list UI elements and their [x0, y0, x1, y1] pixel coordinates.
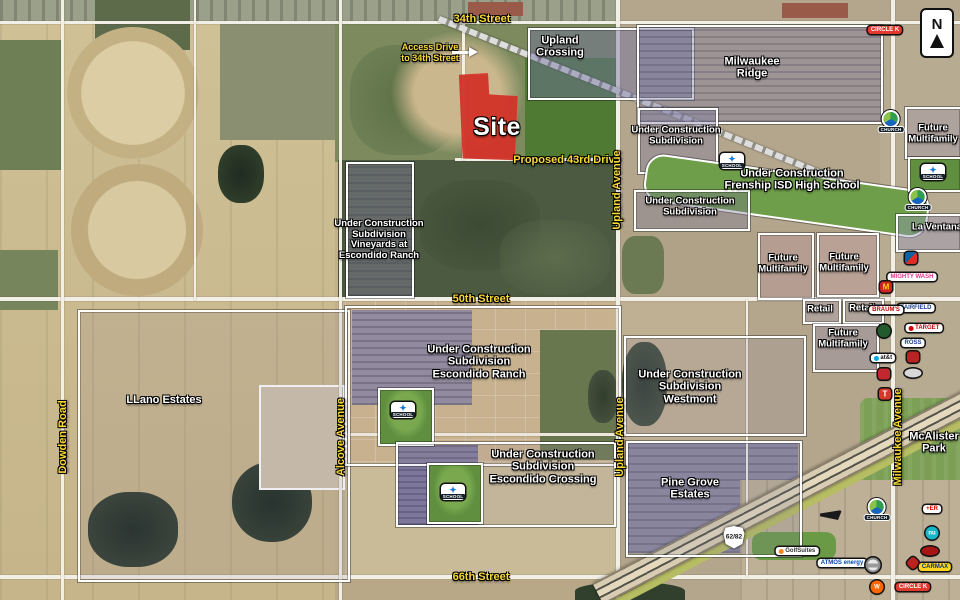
upland-crossing-label: UplandCrossing — [536, 35, 584, 60]
proposed-43rd-drive-label: Proposed 43rd Drive — [513, 154, 621, 166]
school-icon-escondido-crossing: ✦SCHOOL — [441, 484, 465, 500]
mcdonalds-logo: M — [880, 282, 892, 293]
er-logo: +ER — [923, 505, 941, 513]
golfsuites-logo: GolfSuites — [776, 547, 819, 555]
att-logo: at&t — [871, 354, 895, 362]
upland-avenue-south-label: Upland Avenue — [614, 397, 626, 476]
site-label: Site — [473, 113, 521, 141]
torchys-tacos-logo: T — [879, 389, 891, 400]
alcove-avenue-label: Alcove Avenue — [335, 398, 347, 476]
labels-layer: 34th StreetProposed 43rd Drive50th Stree… — [0, 0, 960, 600]
nu-logo: nu — [926, 527, 939, 540]
circle-k-logo-south: CIRCLE K — [896, 583, 930, 591]
dominos-logo — [905, 252, 917, 264]
school-icon-escondido-ranch: ✦SCHOOL — [391, 402, 415, 418]
milwaukee-ridge-label: MilwaukeeRidge — [724, 56, 779, 81]
escondido-ranch-label: Under ConstructionSubdivisionEscondido R… — [427, 344, 530, 381]
nissan-logo — [866, 558, 881, 573]
aerial-map: Site Access Drive to 34th Street N 34th … — [0, 0, 960, 600]
access-arrow-line — [452, 51, 470, 54]
llano-estates-label: LLano Estates — [126, 394, 201, 406]
under-construction-subdivision-2-label: Under ConstructionSubdivision — [645, 196, 734, 217]
dealer-arrow-logo — [820, 510, 842, 520]
north-arrow: N — [920, 8, 954, 58]
ross-logo: ROSS — [901, 339, 924, 347]
pine-grove-estates-label: Pine GroveEstates — [661, 477, 719, 502]
school-icon-northeast: ✦SCHOOL — [921, 164, 945, 180]
access-arrow-icon — [469, 47, 478, 57]
highway-62-82-shield: 62/82 — [724, 526, 745, 549]
market-street-logo — [878, 325, 891, 338]
upland-avenue-north-label: Upland Avenue — [611, 150, 623, 229]
slanted-auto-logo — [905, 369, 922, 378]
hotel-oval-logo — [922, 547, 939, 556]
access-drive-note: Access Drive to 34th Street — [401, 42, 459, 64]
future-multifamily-2-label: FutureMultifamily — [819, 252, 869, 273]
escondido-crossing-label: Under ConstructionSubdivisionEscondido C… — [490, 449, 597, 486]
vineyards-at-escondido-ranch-label: Under ConstructionSubdivisionVineyards a… — [334, 219, 423, 262]
north-arrow-icon — [930, 34, 944, 48]
dowden-road-label: Dowden Road — [57, 400, 69, 473]
future-multifamily-3-label: FutureMultifamily — [818, 328, 868, 349]
church-icon-1: CHURCH — [879, 112, 904, 132]
50th-street-label: 50th Street — [453, 293, 510, 305]
34th-street-label: 34th Street — [454, 13, 511, 25]
mighty-wash-logo: MIGHTY WASH — [888, 273, 937, 281]
future-multifamily-northeast-label: FutureMultifamily — [908, 123, 958, 144]
atmos-energy-logo: ATMOS energy — [818, 559, 867, 567]
carmax-logo: CARMAX — [919, 563, 951, 571]
red-banner-logo — [907, 352, 919, 363]
church-icon-2: CHURCH — [906, 190, 931, 210]
retail-1-label: Retail — [807, 305, 833, 316]
north-label: N — [932, 18, 943, 32]
la-ventana-label: La Ventana — [912, 223, 960, 234]
whataburger-logo: W — [871, 581, 884, 594]
future-multifamily-1-label: FutureMultifamily — [758, 253, 808, 274]
circle-k-logo-north: CIRCLE K — [868, 26, 902, 34]
milwaukee-avenue-label: Milwaukee Avenue — [892, 389, 904, 486]
rosas-cafe-logo — [878, 369, 890, 380]
mcalister-park-label: McAlisterPark — [909, 431, 959, 456]
school-icon-frenship: ✦SCHOOL — [720, 153, 744, 169]
fairfield-inn-logo: FAIRFIELD — [898, 304, 935, 312]
target-logo: TARGET — [906, 324, 943, 332]
westmont-label: Under ConstructionSubdivisionWestmont — [638, 369, 741, 406]
frenship-isd-high-school-label: Under ConstructionFrenship ISD High Scho… — [724, 168, 859, 193]
braums-logo: BRAUM'S — [869, 306, 903, 314]
under-construction-subdivision-1-label: Under ConstructionSubdivision — [631, 125, 720, 146]
church-icon-3: CHURCH — [865, 500, 890, 520]
66th-street-label: 66th Street — [453, 571, 510, 583]
